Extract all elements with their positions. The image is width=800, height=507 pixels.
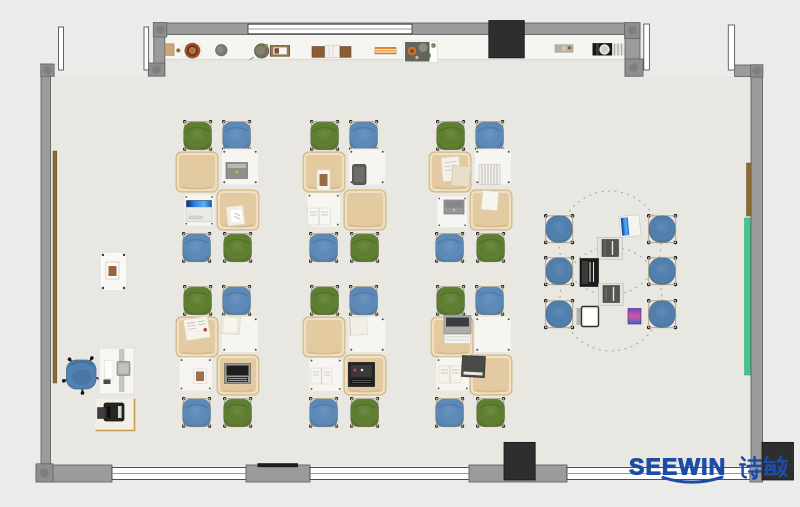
svg-text:SEEWIN: SEEWIN <box>629 454 726 480</box>
